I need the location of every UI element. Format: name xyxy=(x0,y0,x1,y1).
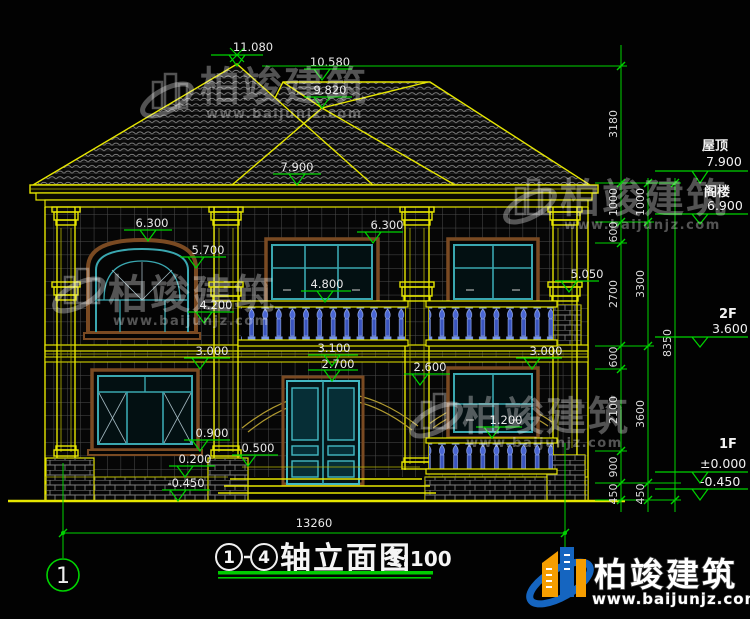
dim-value: 2700 xyxy=(607,280,620,308)
level-value: 3.100 xyxy=(318,341,351,355)
balcony-balustrade-2f xyxy=(238,301,557,346)
level-value: 0.900 xyxy=(196,426,229,440)
watermark-url: www.baijunjz.com xyxy=(466,436,623,451)
drawing-title-block: 1 4 轴立面图 1:100 xyxy=(216,541,452,579)
watermark-brand: 柏竣建筑 xyxy=(200,64,368,110)
dim-value: 3600 xyxy=(634,400,647,428)
f2-label: 2F xyxy=(719,307,737,322)
level-value: 11.080 xyxy=(233,40,273,54)
f1-label: 1F xyxy=(719,437,737,452)
watermark-url: www.baijunjz.com xyxy=(564,218,721,233)
total-width-dim: 13260 xyxy=(296,516,333,530)
level-value: 6.300 xyxy=(371,218,404,232)
level-value: 3.000 xyxy=(196,344,229,358)
dim-value: 3180 xyxy=(607,110,620,138)
level-value: -0.450 xyxy=(167,476,204,490)
watermark-brand: 柏竣建筑 xyxy=(560,176,728,222)
level-marker: 11.080 xyxy=(211,40,273,66)
company-url: www.baijunjz.com xyxy=(592,590,750,608)
company-logo: 柏竣建筑 www.baijunjz.com xyxy=(524,547,750,612)
level-value: 5.050 xyxy=(571,267,604,281)
roof-label: 屋顶 xyxy=(702,139,728,154)
roof-value: 7.900 xyxy=(706,154,742,169)
drawing-canvas: 11.080 10.580 9.820 7.900 6.300 5.700 6.… xyxy=(0,0,750,619)
f2-value: 3.600 xyxy=(712,321,748,336)
axis-bubble: 1 xyxy=(47,559,79,591)
title-axis-start: 1 xyxy=(223,548,235,568)
window-2f-right xyxy=(444,239,542,310)
cad-elevation-drawing: 11.080 10.580 9.820 7.900 6.300 5.700 6.… xyxy=(0,0,750,619)
dim-value: 3300 xyxy=(634,270,647,298)
dim-value: 600 xyxy=(607,347,620,368)
level-value: 2.600 xyxy=(414,360,447,374)
title-underline xyxy=(218,571,433,575)
title-underline-thin xyxy=(218,577,431,579)
drawing-scale: 1:100 xyxy=(388,547,452,571)
f1-minus-value: -0.450 xyxy=(700,474,740,489)
level-value: 4.800 xyxy=(311,277,344,291)
axis-bubble-number: 1 xyxy=(56,564,70,589)
f1-zero-value: ±0.000 xyxy=(700,456,746,471)
title-axis-end: 4 xyxy=(258,548,270,568)
dim-value: 8350 xyxy=(661,329,674,357)
watermark-brand: 柏竣建筑 xyxy=(462,394,630,440)
window-2f-center xyxy=(262,239,382,310)
company-logo-icon xyxy=(524,547,597,612)
chain-labels-outer: 8350 xyxy=(661,329,674,357)
level-value: 6.300 xyxy=(136,216,169,230)
dim-value: 450 xyxy=(607,484,620,505)
level-value: 0.500 xyxy=(242,441,275,455)
window-1f-left xyxy=(88,370,202,455)
watermark-url: www.baijunjz.com xyxy=(206,107,363,122)
watermark-brand: 柏竣建筑 xyxy=(108,272,276,318)
dim-value: 900 xyxy=(607,457,620,478)
company-name: 柏竣建筑 xyxy=(594,555,738,594)
level-value: 0.200 xyxy=(179,452,212,466)
f1-level: 1F ±0.000 -0.450 xyxy=(655,437,748,500)
level-value: 7.900 xyxy=(281,160,314,174)
level-value: 5.700 xyxy=(192,243,225,257)
level-value: 3.000 xyxy=(530,344,563,358)
entrance-door xyxy=(283,377,363,484)
watermark-url: www.baijunjz.com xyxy=(113,314,270,329)
dim-value: 450 xyxy=(634,484,647,505)
level-value: 2.700 xyxy=(322,357,355,371)
